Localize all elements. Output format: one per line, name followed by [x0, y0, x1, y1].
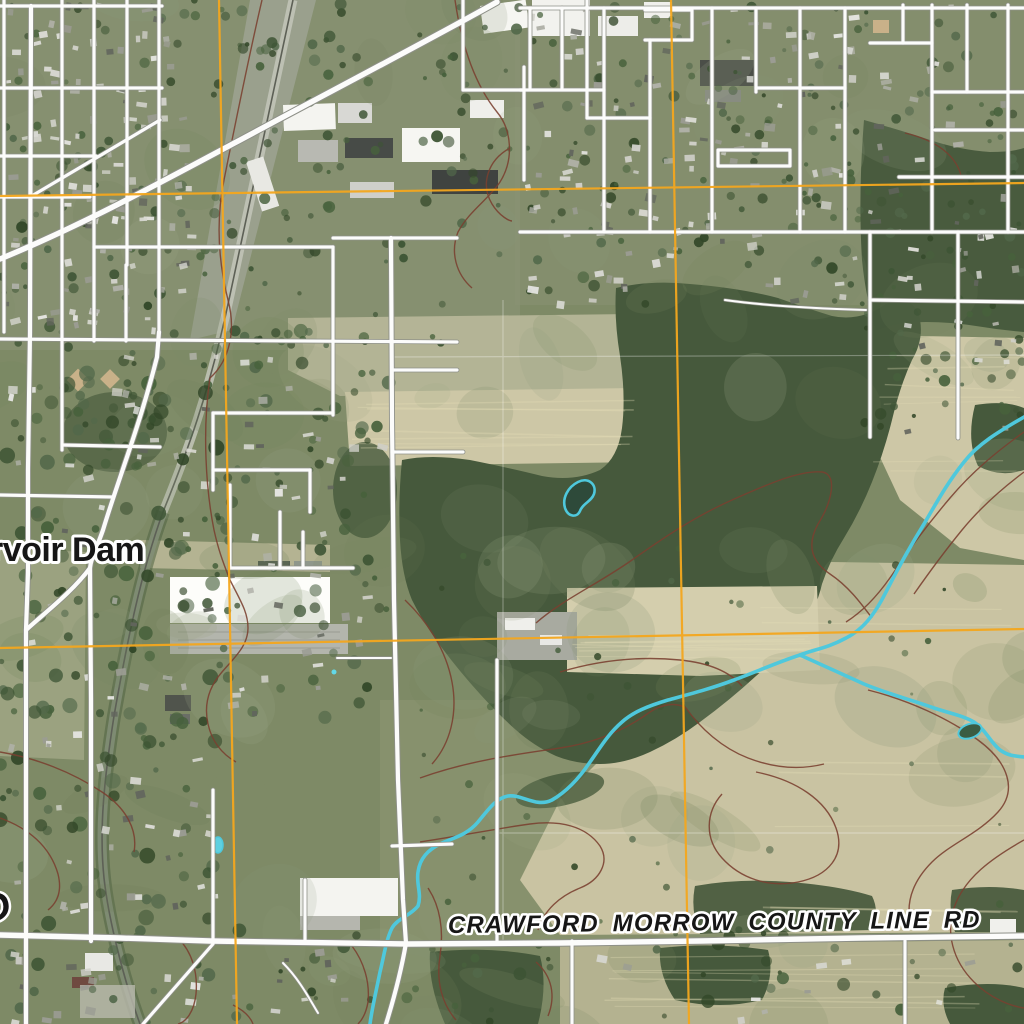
backyard-pool	[332, 670, 337, 675]
road-label-county-line: CRAWFORD MORROW COUNTY LINE RD	[448, 906, 981, 939]
map-viewport[interactable]: rvoir Dam CRAWFORD MORROW COUNTY LINE RD…	[0, 0, 1024, 1024]
map-canvas[interactable]: rvoir Dam CRAWFORD MORROW COUNTY LINE RD…	[0, 0, 1024, 1024]
place-label-reservoir-dam: rvoir Dam	[0, 531, 144, 569]
